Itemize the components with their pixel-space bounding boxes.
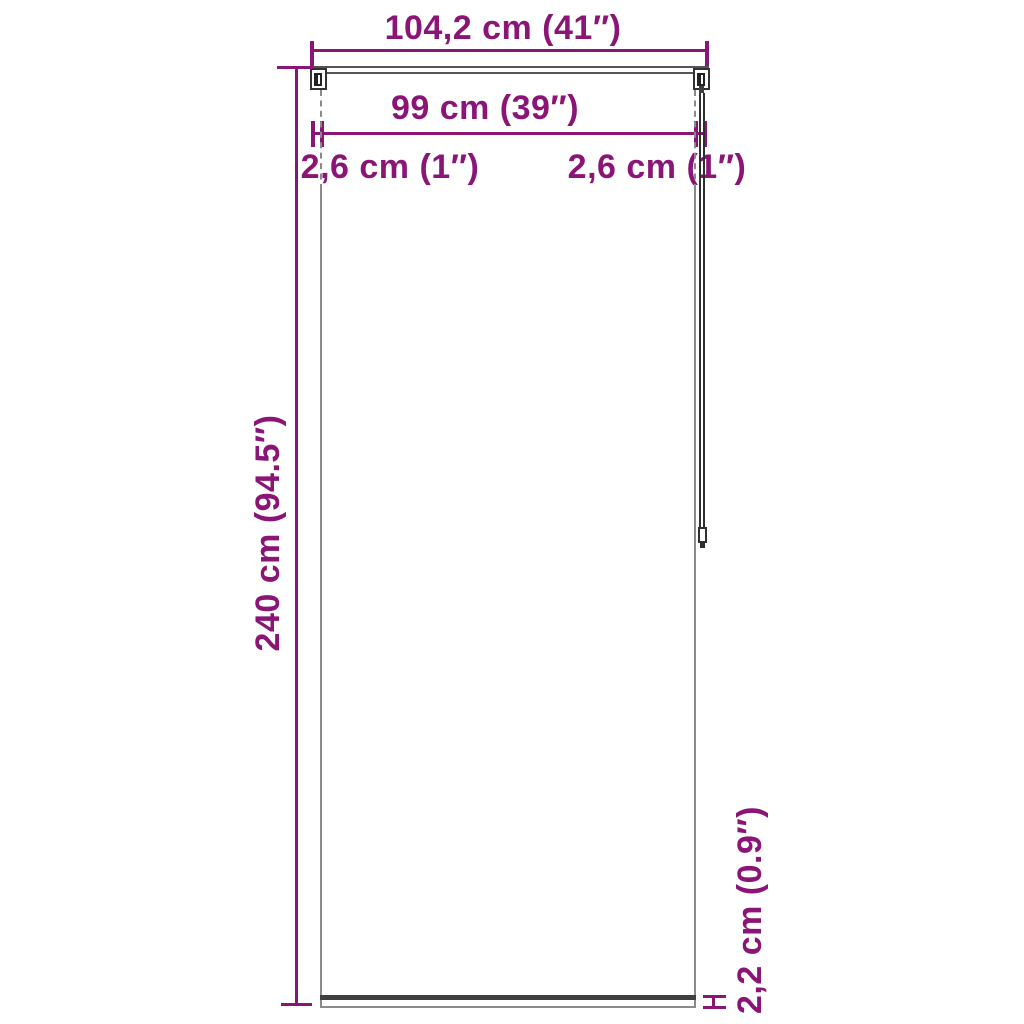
pull-cord — [699, 93, 705, 527]
total-width-label: 104,2 cm (41″) — [343, 9, 663, 48]
bottom-bar — [320, 995, 696, 1000]
gap-right-label: 2,6 cm (1″) — [567, 148, 747, 187]
total-width-tick-left — [310, 41, 314, 67]
fabric-width-tick-left-outer — [311, 121, 315, 147]
gap-left-label: 2,6 cm (1″) — [300, 148, 480, 187]
cord-attachment — [699, 86, 704, 93]
fabric-left-edge-dashed — [320, 90, 322, 190]
height-label: 240 cm (94.5″) — [248, 373, 288, 693]
headrail-bar — [311, 66, 709, 74]
bracket-left — [310, 68, 327, 90]
total-width-dim-line — [311, 49, 708, 52]
cord-tassel — [698, 527, 707, 543]
fabric-width-dim-line — [313, 132, 707, 135]
fabric-bottom-edge — [320, 1006, 696, 1008]
height-tick-top — [277, 66, 313, 69]
fabric-width-label: 99 cm (39″) — [325, 89, 645, 128]
total-width-tick-right — [705, 41, 709, 68]
fabric-right-edge — [694, 190, 696, 1008]
dimension-diagram: 104,2 cm (41″) 99 cm (39″) 2,6 cm (1″) 2… — [0, 0, 1024, 1024]
bracket-right-clamp — [697, 73, 705, 86]
height-tick-bottom — [281, 1003, 312, 1006]
cord-tip — [700, 543, 705, 548]
bottom-bar-tick-top — [703, 995, 726, 998]
bottom-bar-label: 2,2 cm (0.9″) — [730, 750, 770, 1024]
height-dim-line — [295, 67, 298, 1005]
fabric-right-edge-dashed — [694, 90, 696, 190]
bracket-left-clamp — [314, 73, 322, 86]
bottom-bar-tick-bottom — [703, 1006, 726, 1009]
fabric-left-edge — [320, 190, 322, 1008]
